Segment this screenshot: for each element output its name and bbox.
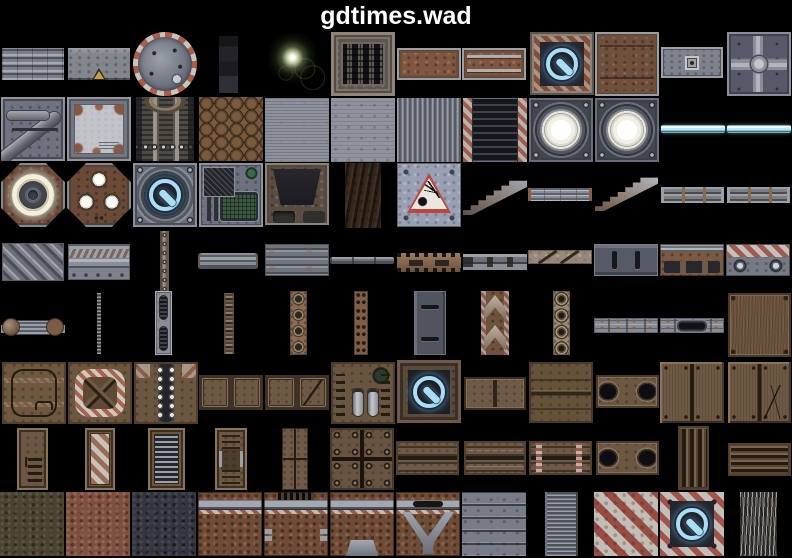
texture-double-slats-hazard	[529, 441, 592, 475]
texture-four-panel	[464, 377, 526, 410]
texture-two-panel-diagonal	[265, 375, 329, 410]
texture-narrow-doors	[282, 428, 308, 490]
texture-ribbed-plate	[265, 244, 329, 276]
wad-title: gdtimes.wad	[0, 2, 792, 31]
texture-gray-plate	[331, 98, 395, 162]
texture-diagonal-ribs	[2, 243, 64, 281]
texture-dotted-strip	[354, 291, 368, 355]
texture-thin-rail	[528, 188, 592, 201]
texture-riveted-band	[594, 318, 658, 333]
texture-vertical-slats	[678, 426, 709, 490]
texture-toothed-rail	[397, 253, 461, 272]
texture-vent-door	[17, 428, 48, 490]
texture-twin-holes-panel	[596, 375, 659, 408]
texture-light-bar	[661, 125, 725, 133]
texture-panel-with-pipe	[1, 97, 65, 161]
texture-atlas-page: gdtimes.wad	[0, 0, 792, 558]
texture-light-flare	[269, 34, 325, 90]
texture-louver-door	[148, 428, 185, 490]
texture-torn-silver-plate	[67, 97, 131, 161]
texture-bracket-pipe	[463, 254, 527, 270]
texture-thin-chain	[97, 293, 101, 354]
texture-rust-wall-base	[330, 492, 394, 556]
texture-fine-slat-strip	[545, 492, 578, 556]
texture-octagon-lights	[67, 163, 131, 227]
texture-machine-door	[215, 428, 247, 490]
texture-two-panel	[199, 375, 263, 410]
texture-stacked-panels	[529, 362, 593, 423]
texture-explosive-sign	[397, 163, 461, 227]
texture-double-slats-lined	[464, 441, 526, 475]
texture-rust-plate	[397, 48, 461, 80]
texture-rust-wall-vent	[264, 492, 328, 556]
texture-quad-dome-panel	[727, 32, 791, 96]
texture-rough-dark	[132, 492, 196, 556]
texture-ribbed-bands	[2, 48, 64, 80]
texture-leather-panel	[728, 293, 791, 357]
texture-slashed-bar	[528, 250, 592, 264]
texture-rock-strip	[345, 163, 381, 228]
texture-chevron-strip	[481, 291, 509, 355]
texture-pipe-coupling	[1, 318, 65, 337]
texture-cable-strip	[740, 492, 777, 556]
texture-dark-column	[219, 36, 238, 93]
texture-power-button-hazard	[660, 492, 724, 556]
texture-corrugated-wall	[397, 98, 461, 162]
texture-thin-pipe	[330, 257, 394, 264]
texture-hazard-bolt-plate	[726, 244, 790, 276]
texture-console-screen	[199, 163, 263, 227]
texture-double-door	[660, 362, 724, 423]
texture-ring-strip	[553, 291, 570, 355]
texture-rail-slot-plate	[660, 244, 724, 276]
texture-round-dial	[133, 32, 197, 96]
texture-hex-tiles	[199, 97, 263, 161]
texture-tube-panel	[331, 362, 395, 424]
texture-rust-panel-framed	[595, 32, 659, 96]
texture-stairs-low	[463, 180, 527, 215]
texture-round-lamp	[529, 98, 593, 162]
texture-pipe-segment	[198, 253, 258, 269]
texture-horizontal-slats	[728, 443, 791, 476]
texture-hazard-stripes	[594, 492, 658, 556]
texture-small-plate	[661, 47, 723, 78]
texture-warning-plate	[68, 48, 130, 80]
texture-bolted-quads	[330, 428, 394, 490]
texture-power-button-rust	[530, 32, 594, 95]
texture-stairs-high	[595, 177, 658, 211]
texture-rough-rust	[66, 492, 130, 556]
texture-engine-front	[136, 97, 194, 161]
texture-light-bar	[727, 125, 791, 133]
texture-hazard-cross-panel	[68, 362, 132, 424]
texture-spine-panel	[134, 362, 198, 424]
texture-slotted-column	[414, 291, 446, 355]
texture-slot-band	[660, 318, 724, 333]
texture-power-button-round	[133, 163, 197, 227]
texture-rail-with-posts	[661, 187, 724, 203]
texture-dark-tech-panel	[265, 163, 329, 225]
texture-twin-holes-panel	[596, 441, 659, 475]
texture-slotted-strip	[155, 291, 172, 355]
texture-door-outline	[2, 362, 66, 424]
texture-double-slats	[396, 441, 459, 475]
texture-rust-wall-rail	[198, 492, 262, 556]
texture-chain-strip	[224, 293, 234, 354]
texture-round-lamp	[595, 98, 659, 162]
texture-rust-plate-bars	[462, 48, 526, 80]
texture-metal-planks	[462, 492, 526, 556]
texture-rail-with-posts	[727, 187, 790, 203]
texture-pipe-bands	[68, 244, 130, 280]
texture-vent-hazard	[463, 98, 527, 162]
texture-rough-olive	[0, 492, 64, 556]
texture-rivet-strip	[290, 291, 307, 355]
texture-power-button-brown	[397, 360, 461, 423]
texture-vertical-pipe	[160, 231, 169, 291]
texture-slotted-plate	[594, 244, 658, 276]
texture-octagon-ring-light	[1, 163, 65, 227]
texture-floor-grate	[331, 32, 395, 96]
texture-double-door-crack	[728, 362, 791, 423]
texture-gray-ribbed-fine	[265, 98, 329, 162]
texture-rust-wall-strut	[396, 492, 460, 556]
texture-hazard-door	[85, 428, 115, 490]
